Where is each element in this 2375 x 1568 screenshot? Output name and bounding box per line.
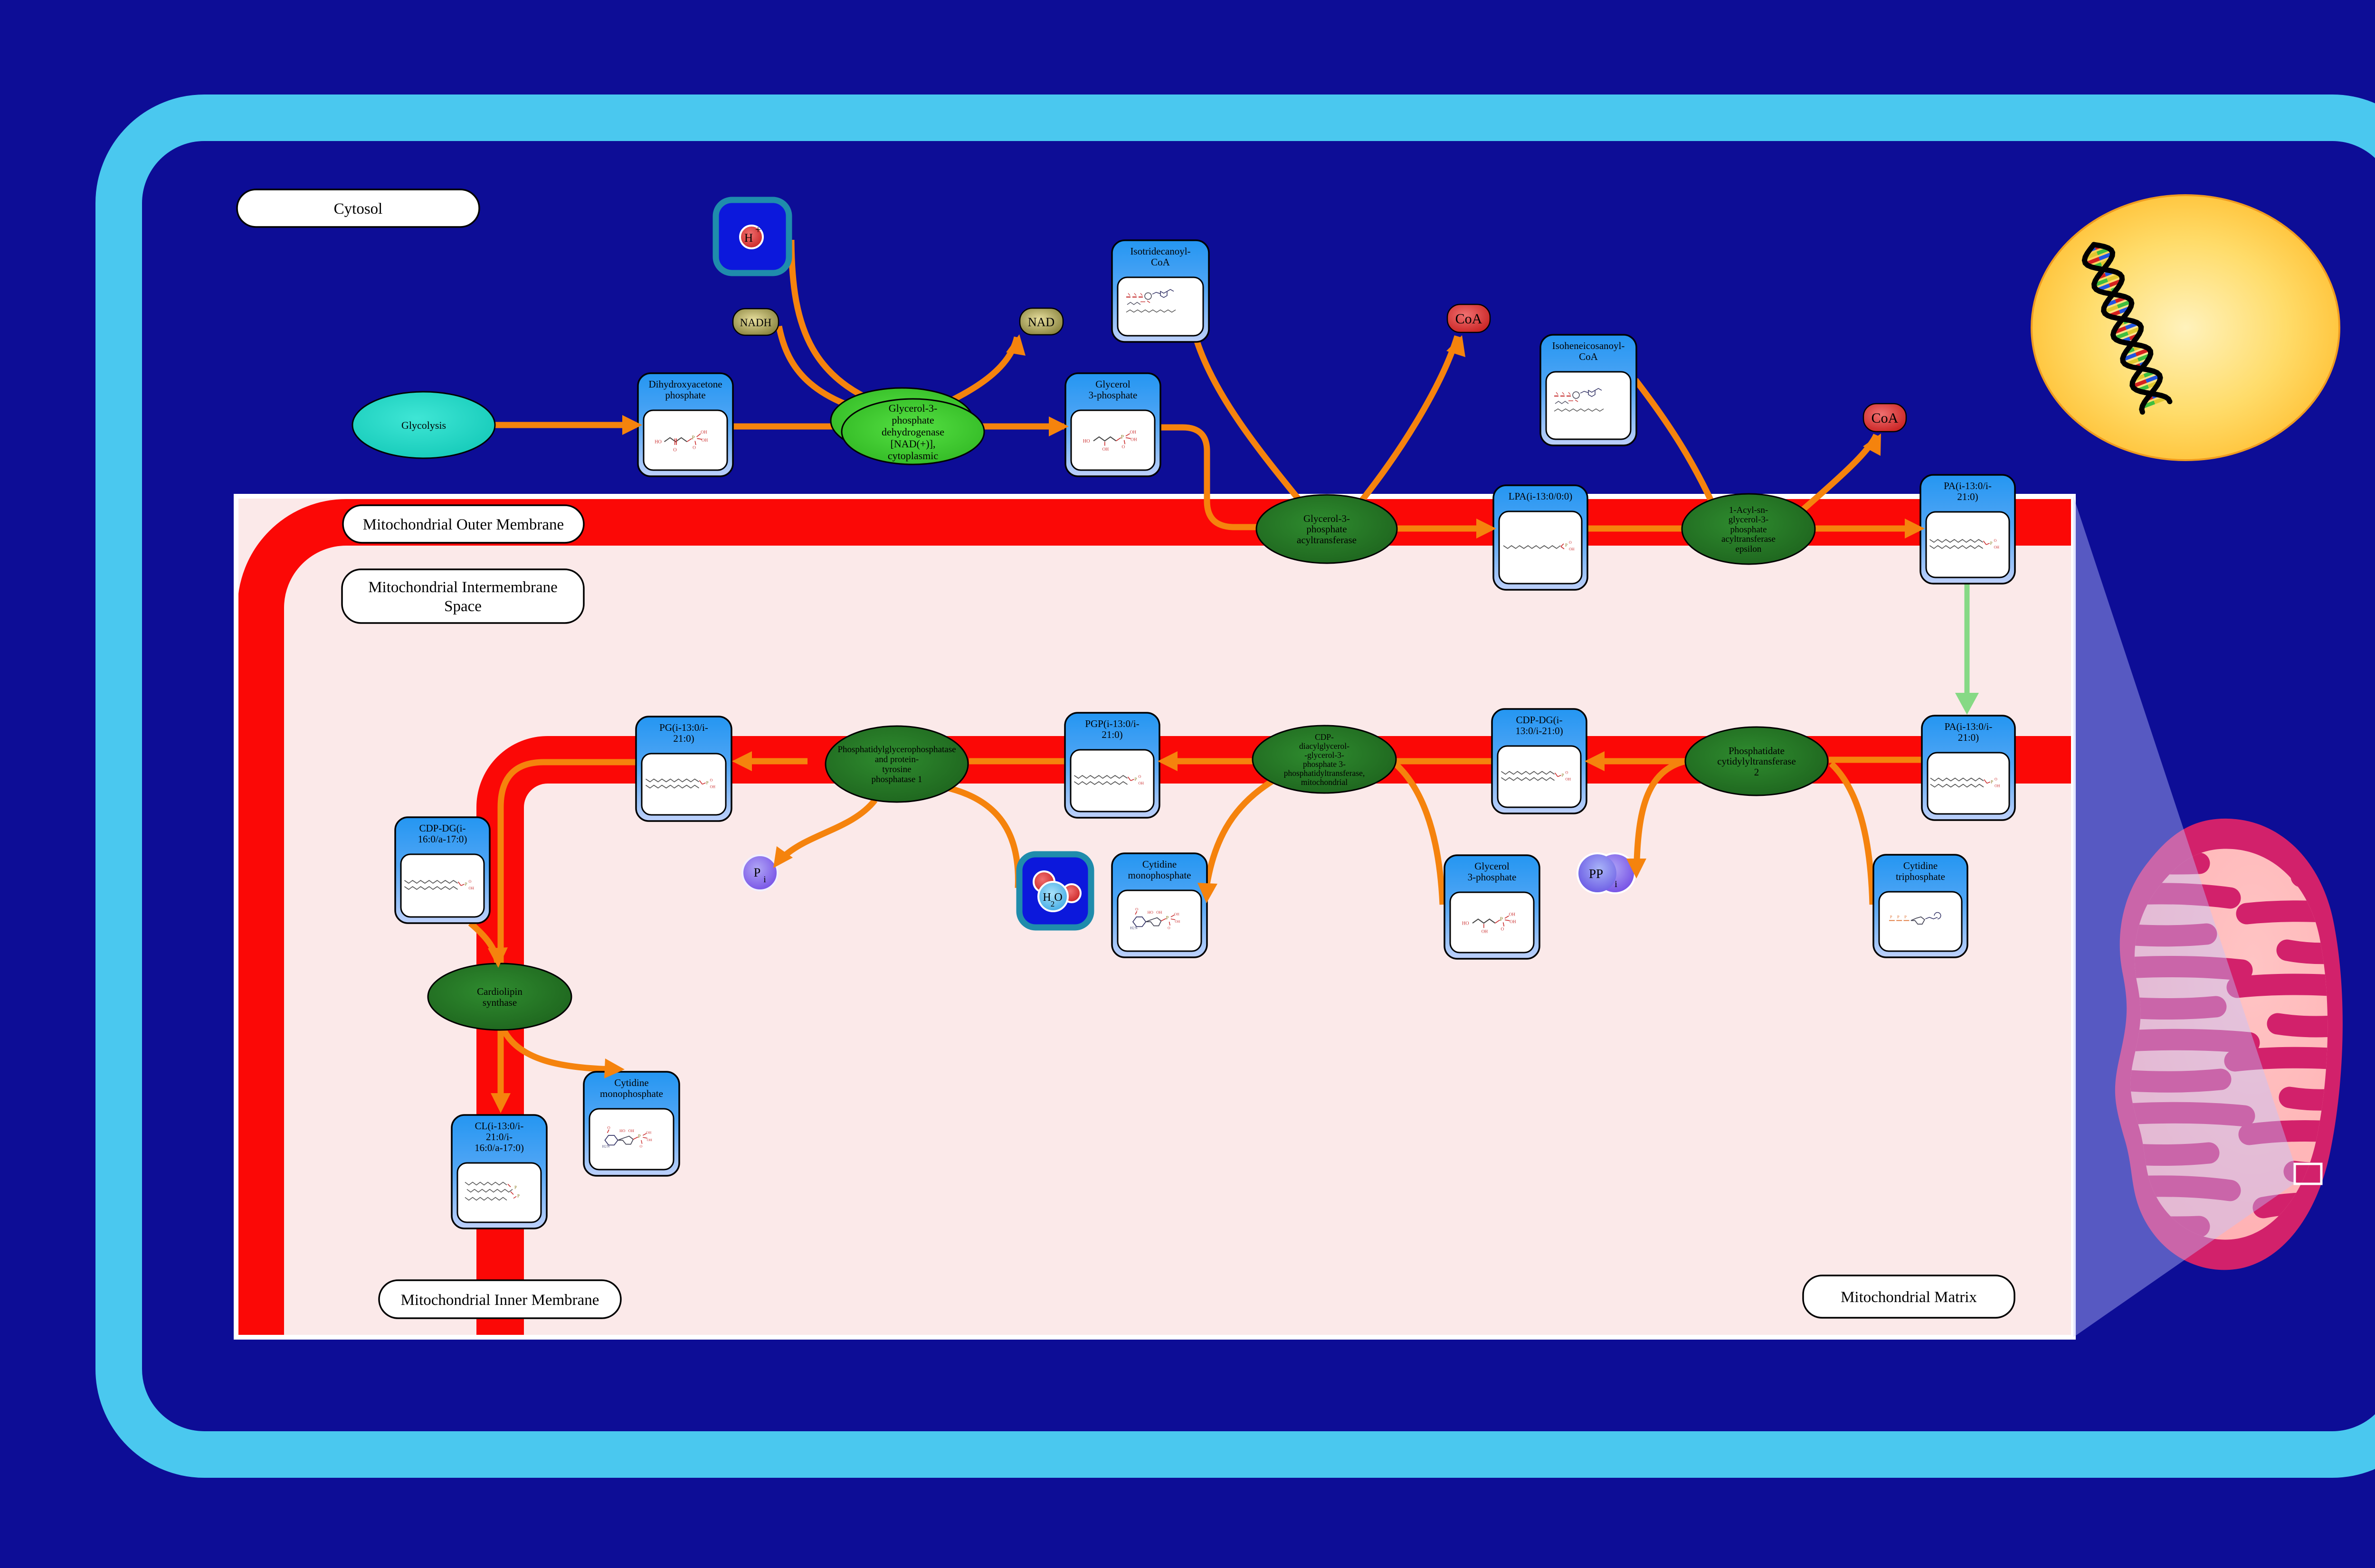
svg-text:PP: PP [1589,867,1603,881]
svg-text:O: O [1054,891,1062,904]
svg-text:O: O [1569,540,1572,545]
svg-text:phosphate: phosphate [1306,523,1347,535]
svg-text:P: P [1166,916,1169,921]
svg-text:P: P [1500,916,1503,922]
svg-text:O: O [710,778,713,783]
svg-text:monophosphate: monophosphate [600,1088,663,1099]
svg-text:O: O [1139,775,1141,779]
svg-text:P: P [638,1134,641,1139]
svg-text:epsilon: epsilon [1736,544,1762,554]
svg-text:HO: HO [1148,910,1153,915]
svg-text:CDP-DG(i-: CDP-DG(i- [419,822,466,834]
svg-text:21:0): 21:0) [673,733,694,744]
svg-text:CL(i-13:0/i-: CL(i-13:0/i- [475,1120,524,1132]
svg-text:Mitochondrial Inner Membrane: Mitochondrial Inner Membrane [401,1292,599,1309]
svg-text:OH: OH [1156,910,1162,915]
svg-text:HO: HO [1083,439,1090,444]
svg-text:OH: OH [1130,438,1137,443]
svg-text:OH: OH [469,886,475,890]
svg-text:P: P [1897,914,1900,919]
svg-text:HO: HO [619,1128,625,1133]
svg-text:P: P [1990,541,1993,546]
svg-text:P: P [1562,773,1564,778]
svg-text:3-phosphate: 3-phosphate [1468,871,1517,883]
svg-text:13:0/i-21:0): 13:0/i-21:0) [1515,725,1563,737]
svg-text:monophosphate: monophosphate [1128,869,1191,881]
svg-text:OH: OH [1139,781,1144,785]
svg-text:OH: OH [1130,430,1137,435]
svg-text:Mitochondrial Intermembrane: Mitochondrial Intermembrane [368,579,558,596]
svg-text:O: O [1122,445,1125,450]
svg-text:+: + [755,224,761,236]
svg-text:CoA: CoA [1455,311,1482,327]
svg-text:OH: OH [647,1138,653,1142]
svg-text:CDP-: CDP- [1315,732,1334,742]
svg-text:CoA: CoA [1579,351,1598,362]
svg-text:OH: OH [1995,784,2000,788]
svg-text:N: N [1135,926,1138,930]
svg-text:P: P [692,435,694,441]
svg-text:Mitochondrial Matrix: Mitochondrial Matrix [1841,1289,1977,1306]
svg-text:O: O [1566,771,1568,775]
svg-text:OH: OH [628,1128,634,1133]
svg-text:O: O [469,879,472,884]
svg-text:O: O [608,1125,610,1130]
svg-text:O: O [1168,926,1170,930]
svg-text:OH: OH [1174,912,1180,916]
svg-text:Cytidine: Cytidine [1903,860,1938,871]
svg-text:P: P [1565,543,1567,548]
svg-text:HO: HO [1462,921,1469,926]
svg-text:PGP(i-13:0/i-: PGP(i-13:0/i- [1085,718,1139,729]
svg-text:16:0/a-17:0): 16:0/a-17:0) [475,1142,524,1153]
svg-text:H: H [1043,891,1051,904]
svg-text:O: O [673,448,676,453]
svg-text:OH: OH [646,1131,652,1135]
svg-text:Cytidine: Cytidine [614,1077,648,1088]
svg-text:Cytosol: Cytosol [334,200,383,217]
svg-text:phosphate 3-: phosphate 3- [1303,759,1346,769]
svg-text:O: O [1995,777,1997,782]
svg-text:OH: OH [702,438,708,443]
svg-text:OH: OH [1482,929,1488,934]
svg-text:H: H [744,232,753,245]
svg-text:P: P [1991,780,1993,784]
svg-text:OH: OH [1569,547,1575,551]
svg-text:triphosphate: triphosphate [1896,871,1945,882]
svg-text:cytoplasmic: cytoplasmic [888,450,939,462]
svg-text:Isoheneicosanoyl-: Isoheneicosanoyl- [1552,340,1625,351]
svg-text:2: 2 [1754,766,1759,778]
svg-text:H: H [602,1144,605,1148]
svg-text:PA(i-13:0/i-: PA(i-13:0/i- [1945,721,1993,732]
svg-text:OH: OH [1509,913,1516,917]
svg-text:PA(i-13:0/i-: PA(i-13:0/i- [1944,480,1992,491]
svg-text:acyltransferase: acyltransferase [1297,534,1357,546]
svg-text:P: P [754,866,760,879]
svg-text:16:0/a-17:0): 16:0/a-17:0) [418,833,467,845]
svg-text:3-phosphate: 3-phosphate [1089,389,1138,401]
svg-text:Glycerol-3-: Glycerol-3- [889,402,938,414]
svg-text:P: P [465,882,467,887]
svg-text:N: N [607,1144,610,1148]
svg-text:Glycerol: Glycerol [1474,860,1510,872]
svg-text:acyltransferase: acyltransferase [1721,534,1776,544]
svg-text:OH: OH [1994,545,2000,549]
svg-text:CoA: CoA [1871,410,1899,426]
svg-text:LPA(i-13:0/0:0): LPA(i-13:0/0:0) [1509,491,1573,502]
svg-text:[NAD(+)],: [NAD(+)], [891,438,936,450]
svg-text:P: P [706,781,709,785]
svg-text:-glycerol-3-: -glycerol-3- [1304,750,1344,760]
svg-text:synthase: synthase [483,997,517,1008]
svg-text:O: O [693,446,696,451]
svg-text:O: O [640,1144,643,1148]
svg-text:P: P [514,1185,517,1190]
svg-text:phosphate: phosphate [665,389,705,401]
svg-text:2: 2 [1133,926,1135,930]
svg-text:21:0/i-: 21:0/i- [486,1131,513,1143]
svg-text:OH: OH [1566,777,1571,782]
svg-text:O: O [1994,538,1997,543]
svg-text:1-Acyl-sn-: 1-Acyl-sn- [1729,505,1768,515]
svg-text:phosphate: phosphate [1730,525,1767,535]
svg-text:glycerol-3-: glycerol-3- [1729,515,1768,525]
svg-text:tyrosine: tyrosine [882,765,911,775]
svg-text:21:0): 21:0) [1958,732,1979,743]
svg-text:phosphate: phosphate [892,414,934,426]
svg-text:CoA: CoA [1151,256,1170,268]
svg-text:P: P [1890,914,1892,919]
svg-text:Glycolysis: Glycolysis [401,419,446,431]
svg-text:Glycerol-3-: Glycerol-3- [1303,513,1350,524]
svg-text:NAD: NAD [1028,315,1054,329]
svg-text:O: O [1135,907,1138,911]
svg-text:CDP-DG(i-: CDP-DG(i- [1516,714,1563,726]
svg-text:P: P [1135,777,1137,782]
svg-text:diacylglycerol-: diacylglycerol- [1299,741,1349,751]
svg-text:Phosphatidate: Phosphatidate [1729,745,1785,756]
svg-text:Dihydroxyacetone: Dihydroxyacetone [648,378,722,390]
svg-text:phosphatase 1: phosphatase 1 [871,775,922,784]
svg-text:PG(i-13:0/i-: PG(i-13:0/i- [659,722,708,733]
svg-text:OH: OH [701,430,707,435]
svg-text:Cytidine: Cytidine [1142,859,1177,870]
svg-text:NADH: NADH [740,317,771,329]
svg-text:P: P [1121,434,1124,440]
svg-text:Cardiolipin: Cardiolipin [477,986,522,997]
svg-text:O: O [1501,927,1504,932]
svg-text:Glycerol: Glycerol [1095,378,1130,390]
svg-text:Isotridecanoyl-: Isotridecanoyl- [1130,246,1190,257]
svg-text:OH: OH [710,785,716,789]
svg-text:P: P [517,1194,520,1199]
svg-text:H: H [1130,926,1133,930]
svg-text:i: i [763,875,766,885]
svg-text:Phosphatidylglycerophosphatase: Phosphatidylglycerophosphatase [837,745,956,755]
svg-text:Mitochondrial Outer Membrane: Mitochondrial Outer Membrane [363,516,564,533]
svg-text:OH: OH [1175,919,1180,924]
svg-text:21:0): 21:0) [1102,729,1122,740]
svg-text:Space: Space [444,598,482,615]
svg-text:phosphatidyltransferase,: phosphatidyltransferase, [1284,768,1365,778]
svg-text:21:0): 21:0) [1957,491,1978,502]
svg-text:and protein-: and protein- [875,755,919,765]
svg-text:HO: HO [655,440,662,445]
svg-text:i: i [1615,879,1617,889]
svg-text:OH: OH [1102,447,1109,452]
svg-text:OH: OH [1510,920,1516,925]
svg-text:dehydrogenase: dehydrogenase [882,426,944,438]
svg-text:cytidylyltransferase: cytidylyltransferase [1717,756,1796,767]
svg-text:P: P [1904,914,1907,919]
svg-text:mitochondrial: mitochondrial [1301,777,1348,787]
